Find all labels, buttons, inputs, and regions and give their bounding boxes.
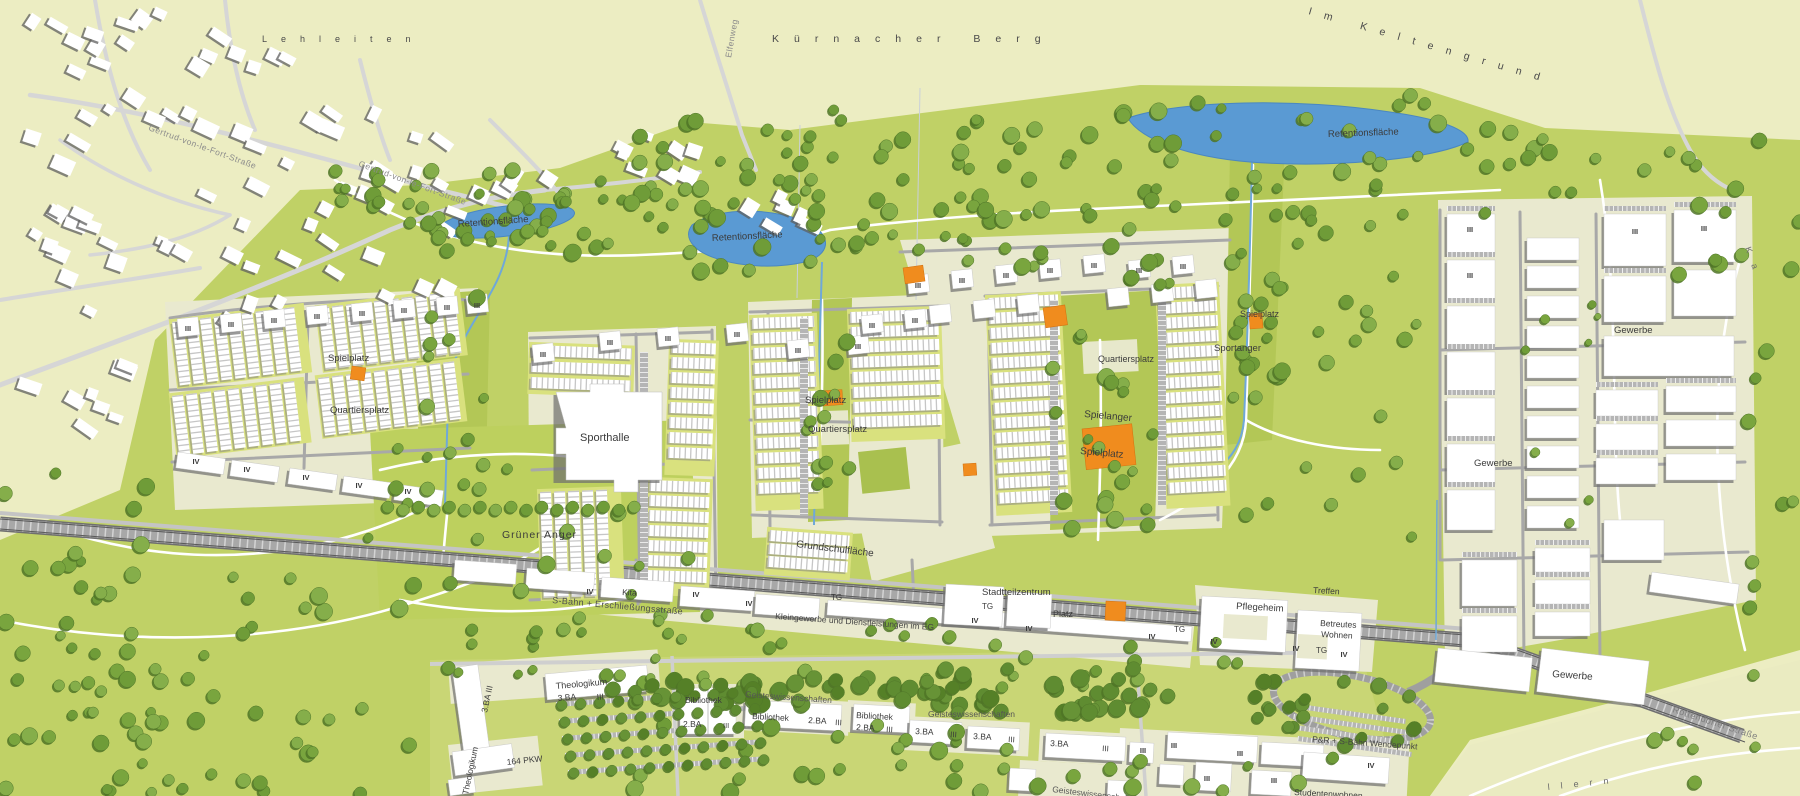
floor-label-iv-11: IV — [1210, 637, 1217, 646]
tree-icon — [603, 238, 614, 249]
tree-icon — [633, 155, 647, 169]
floor-label-iii-3: III — [314, 312, 320, 321]
tree-icon — [598, 501, 610, 513]
floor-label-iii-14: III — [915, 281, 921, 290]
tree-icon — [654, 616, 664, 626]
tree-icon — [866, 231, 879, 244]
tree-icon — [508, 200, 524, 216]
tree-icon — [1672, 267, 1687, 282]
tree-icon — [444, 501, 456, 513]
tree-icon — [1112, 672, 1125, 685]
map-label-geisteswissenschaften-2: Geisteswissenschaften — [928, 709, 1015, 719]
tree-icon — [633, 694, 643, 704]
tree-icon — [1404, 690, 1416, 702]
tree-icon — [1788, 496, 1799, 507]
floor-label-iv-13: IV — [1340, 650, 1347, 659]
tree-icon — [635, 561, 644, 570]
tree-icon — [1150, 103, 1167, 120]
tree-icon — [21, 728, 37, 744]
tree-icon — [787, 675, 804, 692]
tree-icon — [373, 196, 385, 208]
tree-icon — [893, 742, 905, 754]
tree-icon — [674, 709, 684, 719]
tree-icon — [1378, 703, 1388, 713]
tree-icon — [1522, 346, 1530, 354]
tree-icon — [1480, 159, 1494, 173]
map-label-gewerbe-nord: Gewerbe — [1614, 325, 1653, 336]
tree-icon — [563, 734, 573, 744]
floor-label-iii-22: III — [912, 316, 918, 325]
tree-icon — [956, 667, 972, 683]
tree-icon — [472, 533, 484, 545]
tree-icon — [1170, 201, 1181, 212]
tree-icon — [1191, 96, 1205, 110]
floor-label-iii-12: III — [795, 346, 801, 355]
tree-icon — [897, 760, 907, 770]
map-label-theologikum-floors: III — [596, 691, 604, 702]
tree-icon — [1134, 754, 1148, 768]
tree-icon — [1461, 143, 1474, 156]
tree-icon — [551, 504, 563, 516]
tree-icon — [751, 623, 765, 637]
tree-icon — [1390, 456, 1403, 469]
tree-icon — [931, 742, 948, 759]
tree-icon — [1370, 179, 1382, 191]
tree-icon — [1061, 157, 1072, 168]
tree-icon — [1404, 88, 1418, 102]
tree-icon — [958, 234, 968, 244]
tree-icon — [764, 642, 776, 654]
tree-icon — [502, 464, 512, 474]
tree-icon — [951, 759, 963, 771]
tree-icon — [1107, 511, 1123, 527]
tree-icon — [291, 737, 303, 749]
tree-icon — [737, 739, 747, 749]
tree-icon — [652, 693, 662, 703]
tree-icon — [487, 237, 496, 246]
tree-icon — [946, 681, 959, 694]
tree-icon — [1688, 744, 1698, 754]
floor-label-iii-0: III — [185, 324, 191, 333]
detached-house — [973, 299, 996, 319]
tree-icon — [688, 113, 704, 129]
tree-icon — [875, 149, 889, 163]
tree-icon — [12, 673, 24, 685]
floor-label-iii-17: III — [1047, 266, 1053, 275]
tree-icon — [585, 749, 595, 759]
tree-icon — [330, 165, 343, 178]
tree-icon — [762, 124, 774, 136]
tree-icon — [1752, 133, 1767, 148]
house-row — [649, 495, 709, 508]
tree-icon — [462, 433, 475, 446]
tree-icon — [1237, 248, 1247, 258]
map-label-ba-row-3-floors: III — [1102, 744, 1109, 753]
tree-icon — [1682, 151, 1695, 164]
tree-icon — [1638, 163, 1651, 176]
tree-icon — [941, 231, 950, 240]
gewerbe-building — [1462, 560, 1517, 606]
tree-icon — [971, 115, 981, 125]
tree-icon — [1709, 254, 1721, 266]
tree-icon — [1145, 193, 1160, 208]
tree-icon — [741, 158, 754, 171]
tree-icon — [1522, 150, 1536, 164]
map-label-tg-betreutes: TG — [1316, 646, 1327, 655]
tree-icon — [432, 230, 446, 244]
tree-icon — [809, 768, 825, 784]
tree-icon — [1744, 601, 1757, 614]
tree-icon — [661, 744, 671, 754]
tree-icon — [1595, 313, 1601, 319]
tree-icon — [663, 628, 673, 638]
tree-icon — [1430, 115, 1447, 132]
tree-icon — [1320, 355, 1335, 370]
floor-label-iv-4: IV — [404, 487, 411, 496]
tree-icon — [829, 105, 839, 115]
tree-icon — [297, 710, 311, 724]
tree-icon — [783, 130, 792, 139]
tree-icon — [680, 743, 690, 753]
tree-icon — [1585, 495, 1594, 504]
gewerbe-building — [1596, 458, 1658, 484]
tree-icon — [1748, 669, 1759, 680]
tree-icon — [462, 233, 474, 245]
tree-icon — [404, 198, 415, 209]
floor-label-iv-6: IV — [692, 590, 699, 599]
tree-icon — [146, 714, 161, 729]
detached-house — [929, 304, 952, 324]
tree-icon — [466, 624, 477, 635]
map-label-ba-row-2: 3.BA — [973, 731, 992, 742]
tree-icon — [1131, 699, 1149, 717]
tree-icon — [445, 447, 457, 459]
map-label-stadtteilzentrum: Stadtteilzentrum — [982, 587, 1051, 598]
parking-lane — [1158, 290, 1166, 505]
tree-icon — [467, 639, 477, 649]
map-label-bibliothek-1-floors: III — [723, 721, 729, 730]
tree-icon — [119, 671, 135, 687]
tree-icon — [150, 663, 161, 674]
tree-icon — [805, 255, 817, 267]
tree-icon — [1252, 712, 1263, 723]
tree-icon — [406, 577, 422, 593]
tree-icon — [895, 132, 911, 148]
floor-label-iii-21: III — [869, 321, 875, 330]
tree-icon — [364, 533, 373, 542]
tree-icon — [1253, 184, 1262, 193]
floor-label-iii-20: III — [1180, 262, 1186, 271]
tree-icon — [1585, 339, 1592, 346]
map-label-tg-stadtteilzentrum: TG — [982, 602, 993, 611]
tree-icon — [1249, 690, 1262, 703]
tree-icon — [442, 661, 455, 674]
tree-icon — [1165, 153, 1179, 167]
tree-icon — [391, 600, 408, 617]
tree-icon — [898, 173, 910, 185]
tree-icon — [1082, 126, 1098, 142]
tree-icon — [423, 452, 432, 461]
tree-icon — [816, 234, 825, 243]
tree-icon — [1480, 207, 1491, 218]
map-canvas: LehleitenKürnacher BergIm KeltengrundKal… — [0, 0, 1800, 796]
floor-label-iii-9: III — [607, 338, 613, 347]
map-label-field-lehleiten: Lehleiten — [262, 34, 425, 44]
tree-icon — [164, 774, 175, 785]
house-row — [757, 451, 819, 464]
tree-icon — [623, 747, 633, 757]
tree-icon — [1678, 736, 1688, 746]
map-label-spielplatz-mitte: Spielplatz — [805, 395, 846, 406]
tree-icon — [567, 501, 579, 513]
floor-label-iii-30: III — [1271, 776, 1277, 785]
tree-icon — [1034, 201, 1050, 217]
tree-icon — [1728, 181, 1744, 197]
campus-building — [1167, 732, 1258, 763]
tree-icon — [843, 461, 856, 474]
tree-icon — [1002, 663, 1014, 675]
tree-icon — [1274, 363, 1291, 380]
tree-icon — [483, 167, 496, 180]
tree-icon — [657, 154, 673, 170]
house-row — [758, 481, 820, 494]
floor-label-iii-24: III — [1467, 271, 1473, 280]
floor-label-iv-14: IV — [1367, 761, 1374, 770]
tree-icon — [1273, 184, 1282, 193]
gewerbe-building — [1527, 386, 1579, 408]
tree-icon — [999, 159, 1012, 172]
tree-icon — [1046, 361, 1060, 375]
tree-icon — [1300, 112, 1313, 125]
house-row — [757, 466, 819, 479]
tree-icon — [1398, 332, 1413, 347]
tree-icon — [524, 204, 535, 215]
floor-label-iv-7: IV — [745, 599, 752, 608]
floor-label-iii-1: III — [228, 320, 234, 329]
gewerbe-building — [1527, 238, 1579, 260]
tree-icon — [576, 698, 586, 708]
floor-label-iii-25: III — [1632, 227, 1638, 236]
tree-icon — [1372, 678, 1387, 693]
tree-icon — [756, 738, 766, 748]
tree-icon — [1015, 142, 1027, 154]
tree-icon — [1271, 209, 1283, 221]
tree-icon — [1063, 702, 1081, 720]
tree-icon — [835, 763, 846, 774]
tree-icon — [963, 255, 974, 266]
tree-icon — [1091, 665, 1102, 676]
tree-icon — [713, 258, 728, 273]
tree-icon — [1314, 326, 1324, 336]
playground-area — [963, 463, 977, 476]
tree-icon — [935, 202, 949, 216]
floor-label-iii-26: III — [1701, 224, 1707, 233]
tree-icon — [604, 748, 614, 758]
tree-icon — [242, 592, 254, 604]
tree-icon — [1098, 497, 1114, 513]
floor-label-iv-1: IV — [243, 465, 250, 474]
floor-label-iii-5: III — [401, 306, 407, 315]
floor-label-iii-11: III — [734, 330, 740, 339]
tree-icon — [1327, 752, 1339, 764]
tree-icon — [999, 763, 1010, 774]
tree-icon — [1389, 271, 1399, 281]
tree-icon — [393, 443, 403, 453]
tree-icon — [809, 203, 825, 219]
house-row — [649, 510, 709, 523]
tree-icon — [536, 501, 548, 513]
tree-icon — [743, 264, 755, 276]
playground-area — [350, 366, 366, 381]
map-label-bibliothek-2: Bibliothek — [752, 711, 790, 723]
tree-icon — [561, 196, 572, 207]
tree-icon — [1211, 130, 1221, 140]
map-label-bibliothek-1: Bibliothek — [685, 695, 723, 705]
tree-icon — [480, 393, 489, 402]
tree-icon — [285, 573, 296, 584]
tree-icon — [1301, 462, 1312, 473]
floor-label-iv-0: IV — [192, 457, 199, 466]
tree-icon — [1334, 163, 1350, 179]
house-row — [648, 525, 708, 538]
tree-icon — [1531, 448, 1540, 457]
tree-icon — [1229, 392, 1239, 402]
gewerbe-building — [1527, 296, 1579, 318]
gewerbe-building — [1447, 214, 1495, 254]
tree-icon — [1750, 373, 1761, 384]
tree-icon — [607, 765, 617, 775]
map-label-platz: Platz — [1053, 609, 1074, 619]
tree-icon — [852, 676, 870, 694]
floor-label-iv-10: IV — [1148, 632, 1155, 641]
tree-icon — [1784, 261, 1799, 276]
tree-icon — [753, 721, 763, 731]
tree-icon — [1123, 222, 1136, 235]
tree-icon — [777, 638, 787, 648]
tree-icon — [207, 689, 220, 702]
tree-icon — [138, 759, 147, 768]
detached-house — [1017, 294, 1040, 314]
map-label-tg-kleingewerbe: TG — [831, 593, 842, 602]
tree-icon — [1300, 693, 1311, 704]
tree-icon — [606, 682, 621, 697]
tree-icon — [136, 734, 151, 749]
tree-icon — [389, 481, 404, 496]
tree-icon — [1240, 508, 1254, 522]
tree-icon — [1287, 205, 1300, 218]
tree-icon — [938, 662, 954, 678]
tree-icon — [121, 713, 136, 728]
tree-icon — [1072, 670, 1089, 687]
tree-icon — [125, 627, 138, 640]
tree-icon — [127, 501, 142, 516]
tree-icon — [530, 625, 542, 637]
tree-icon — [1019, 650, 1032, 663]
gewerbe-building — [1527, 416, 1579, 438]
tree-icon — [1565, 518, 1574, 527]
tree-icon — [774, 174, 785, 185]
tree-icon — [914, 244, 925, 255]
tree-icon — [1081, 704, 1097, 720]
floor-label-iii-2: III — [271, 316, 277, 325]
tree-icon — [514, 670, 522, 678]
tree-icon — [237, 627, 250, 640]
map-label-quartiersplatz-west: Quartiersplatz — [330, 405, 389, 416]
tree-icon — [921, 675, 934, 688]
tree-icon — [598, 549, 611, 562]
tree-icon — [1688, 776, 1701, 789]
tree-icon — [1325, 498, 1338, 511]
campus-building — [1159, 764, 1184, 785]
floor-label-iii-13: III — [855, 342, 861, 351]
gewerbe-building — [1447, 398, 1495, 438]
tree-icon — [1263, 333, 1273, 343]
tree-icon — [782, 148, 792, 158]
tree-icon — [995, 210, 1012, 227]
tree-icon — [579, 715, 589, 725]
tree-icon — [650, 188, 663, 201]
tree-icon — [420, 399, 435, 414]
map-label-quartiersplatz-mitte: Quartiersplatz — [808, 424, 867, 435]
map-label-bibliothek-3-ba: 2.BA — [856, 722, 875, 733]
playground-area — [1043, 305, 1068, 328]
tree-icon — [944, 630, 957, 643]
map-label-spielplatz-west: Spielplatz — [328, 353, 369, 364]
gewerbe-building — [1666, 454, 1736, 480]
tree-icon — [895, 692, 911, 708]
tree-icon — [120, 644, 135, 659]
floor-label-iii-19: III — [1136, 266, 1142, 275]
tree-icon — [1015, 258, 1031, 274]
tree-icon — [1148, 429, 1159, 440]
tree-icon — [1184, 778, 1200, 794]
tree-icon — [1244, 761, 1253, 770]
tree-icon — [613, 504, 625, 516]
tree-icon — [178, 783, 189, 794]
tree-icon — [1741, 414, 1756, 429]
house-row — [648, 540, 708, 553]
floor-label-iv-2: IV — [302, 473, 309, 482]
tree-icon — [1217, 104, 1226, 113]
tree-icon — [731, 705, 741, 715]
map-label-bibliothek-2-floors: III — [835, 718, 842, 727]
tree-icon — [474, 501, 486, 513]
tree-icon — [693, 263, 709, 279]
gewerbe-building — [1596, 424, 1658, 450]
tree-icon — [1283, 721, 1295, 733]
tree-icon — [721, 757, 731, 767]
tree-icon — [679, 183, 692, 196]
tree-icon — [54, 680, 65, 691]
tree-icon — [23, 560, 38, 575]
tree-icon — [405, 217, 416, 228]
terraced-block — [749, 313, 824, 511]
tree-icon — [627, 780, 644, 796]
tree-icon — [424, 163, 439, 178]
map-label-bibliothek-2-ba: 2.BA — [808, 715, 827, 726]
tree-icon — [566, 751, 576, 761]
gewerbe-building — [1666, 420, 1736, 446]
tree-icon — [658, 222, 668, 232]
gewerbe-building — [1527, 356, 1579, 378]
tree-icon — [1076, 329, 1086, 339]
map-label-gruener-anger: Grüner Anger — [502, 529, 577, 541]
floor-label-iii-16: III — [1003, 271, 1009, 280]
tree-icon — [657, 141, 669, 153]
floor-label-iii-4: III — [359, 309, 365, 318]
tree-icon — [671, 692, 681, 702]
tree-icon — [1218, 656, 1230, 668]
